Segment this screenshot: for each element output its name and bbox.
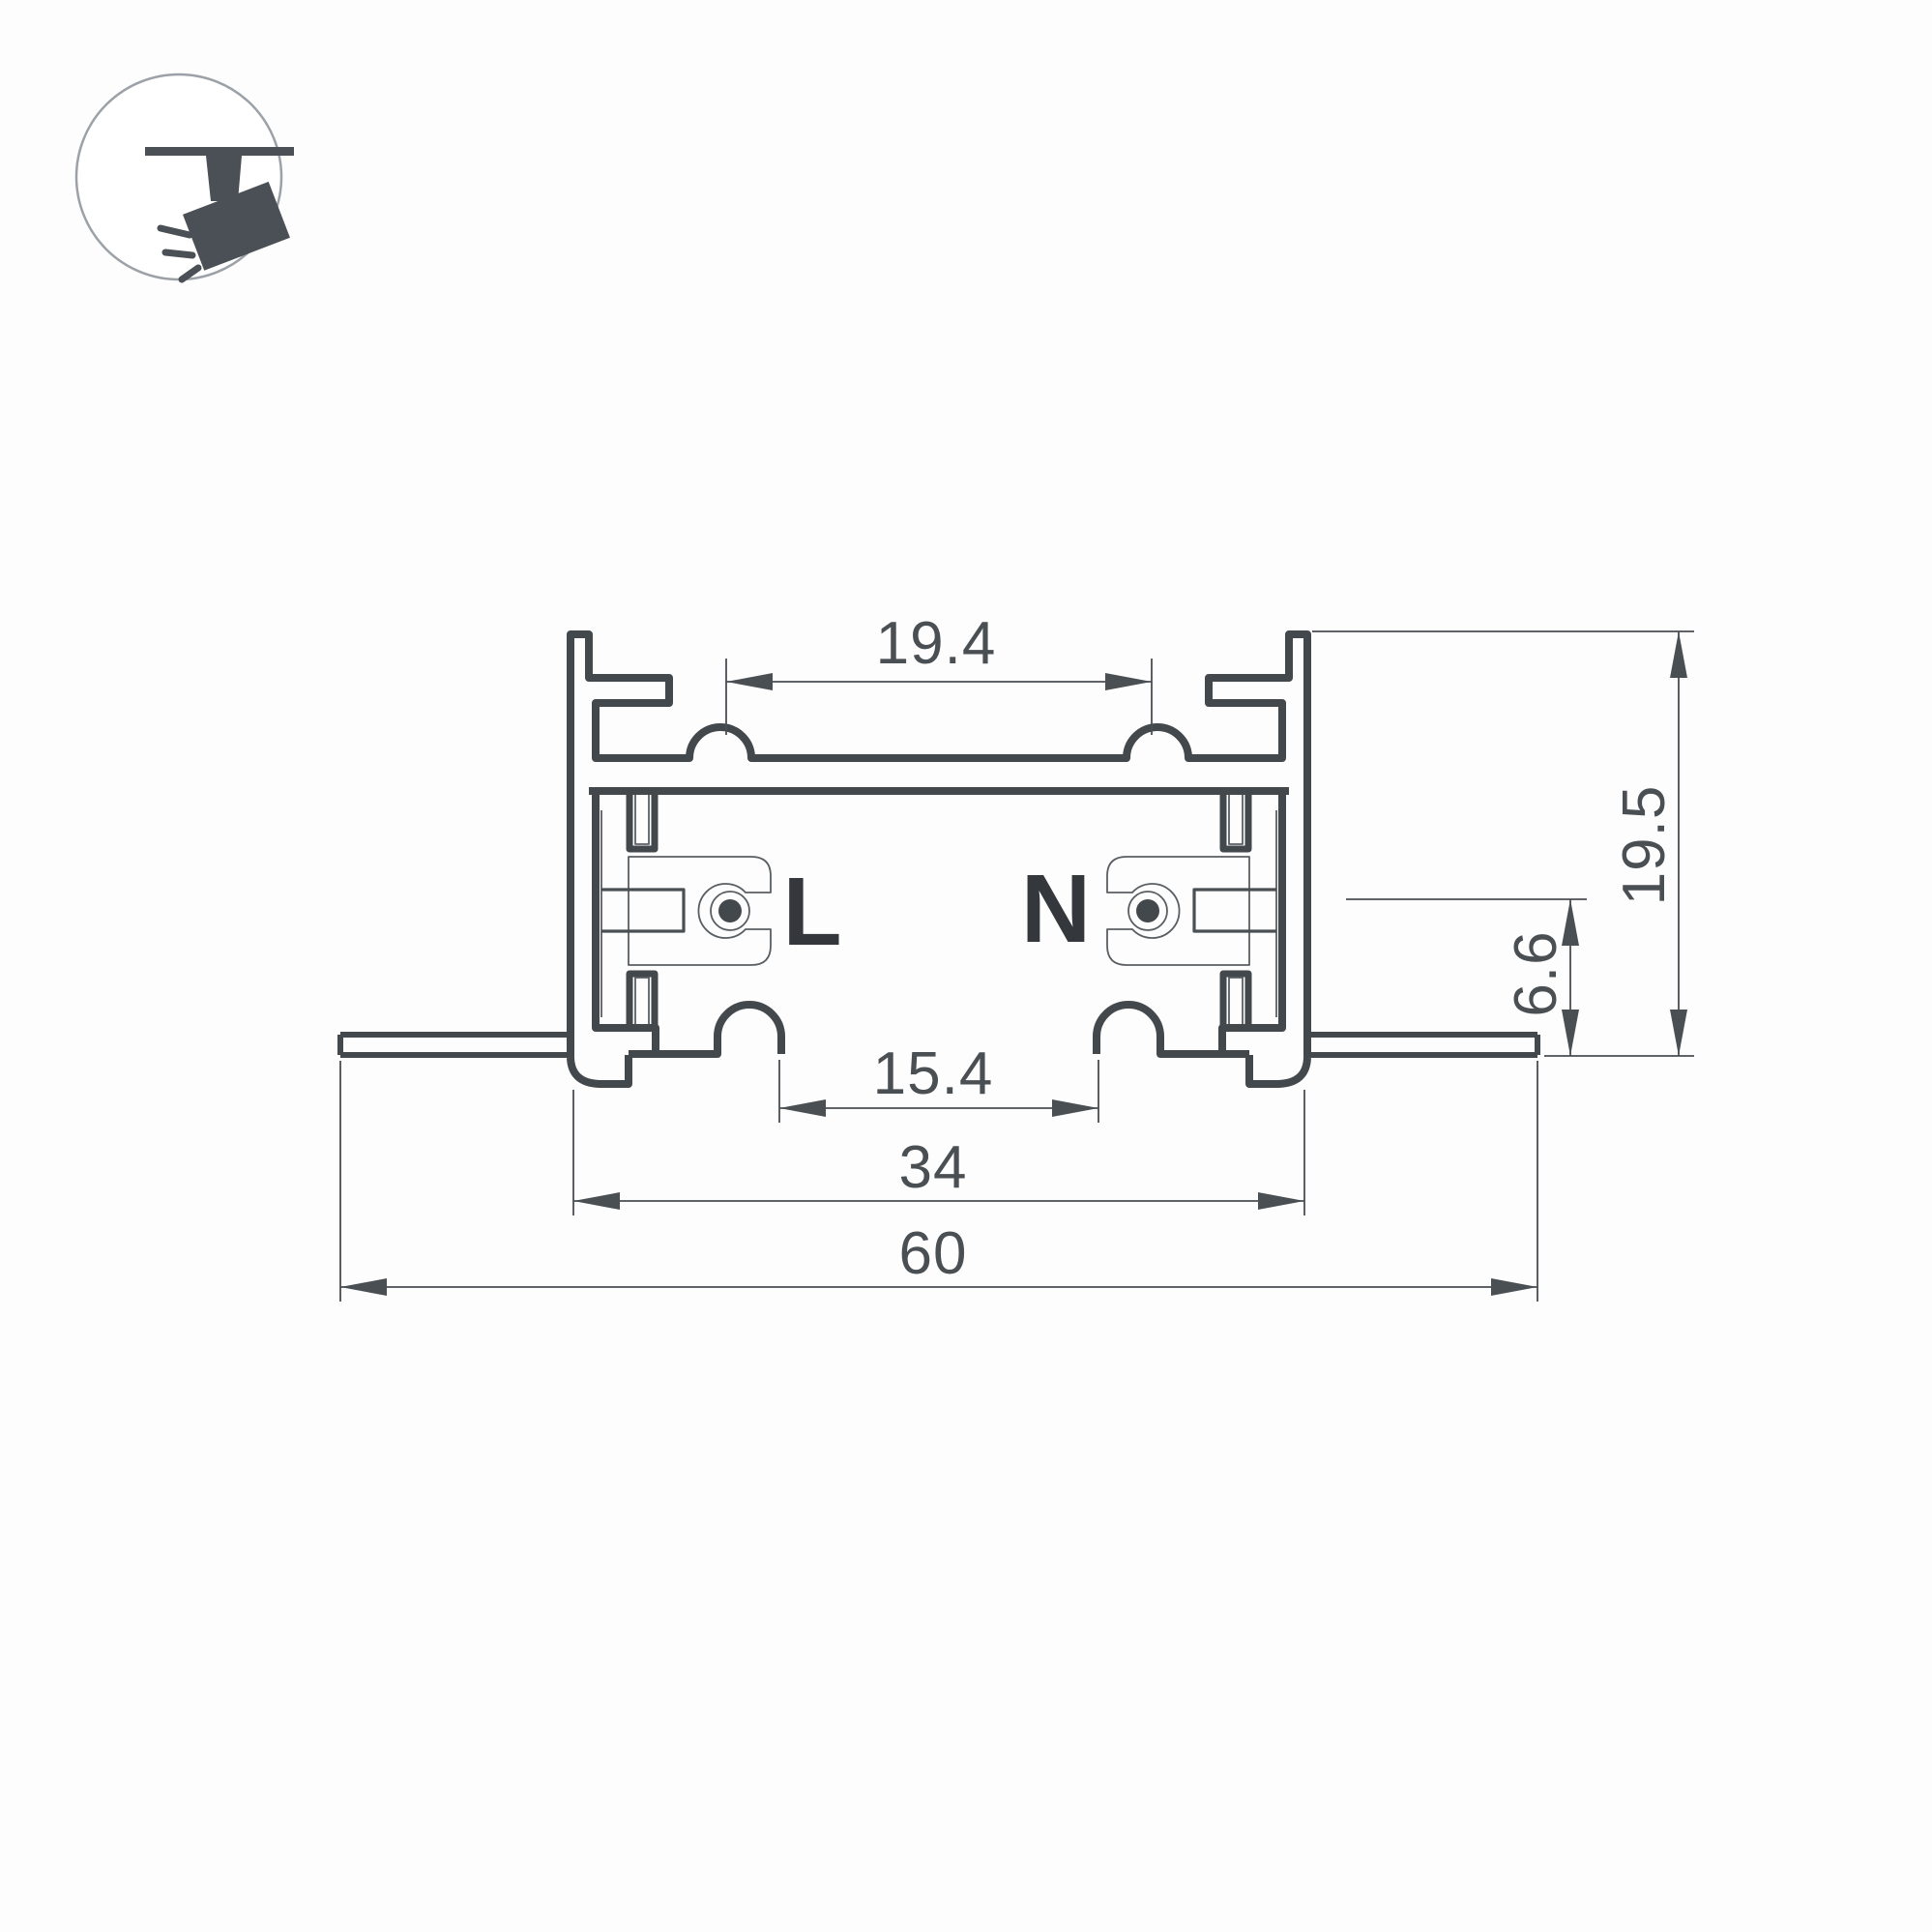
dim-value-60: 60 — [899, 1220, 968, 1287]
dimension-top-inner-width: 19.4 — [726, 610, 1152, 735]
dimension-opening-width: 15.4 — [779, 1040, 1098, 1123]
dim-value-19-5: 19.5 — [1611, 785, 1678, 906]
drawing-canvas: L N 19.4 19.5 6.6 15.4 34 — [0, 0, 1932, 1932]
dim-value-15-4: 15.4 — [873, 1040, 994, 1107]
dim-value-6-6: 6.6 — [1503, 930, 1569, 1016]
profile-left-half — [340, 634, 939, 1084]
track-profile-outline — [340, 634, 1537, 1084]
technical-drawing: L N 19.4 19.5 6.6 15.4 34 — [0, 0, 1932, 1932]
dim-value-34: 34 — [899, 1134, 968, 1201]
light-ray-icon — [165, 252, 192, 255]
brand-logo — [76, 74, 294, 279]
line-conductor-label: L — [782, 858, 841, 966]
ceiling-bar — [145, 147, 294, 156]
neutral-conductor-label: N — [1021, 855, 1091, 963]
dim-value-19-4: 19.4 — [876, 610, 997, 677]
